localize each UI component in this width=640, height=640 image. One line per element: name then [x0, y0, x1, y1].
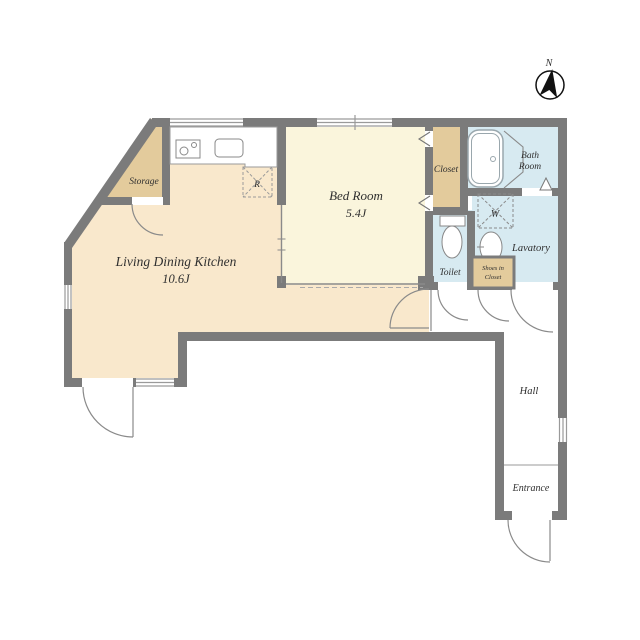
room-floor-hall-corridor: [429, 285, 563, 332]
label-ldk-size: 10.6J: [162, 272, 191, 286]
ldk-bottom-window: [136, 378, 174, 387]
wall-ldk-bottom: [178, 332, 504, 341]
hall-window: [558, 418, 567, 442]
wall-kitchen-left: [162, 118, 170, 205]
opening-toilet-door: [438, 282, 467, 290]
compass: N: [536, 58, 564, 99]
left-window: [64, 285, 72, 309]
bathtub: [468, 130, 503, 187]
stove: [176, 140, 200, 158]
label-shoes-closet-line2: Closet: [485, 274, 502, 281]
shoes-closet-box: [472, 257, 514, 288]
floor-plan-page: N Storage Living Dining Kitchen 10.6J Be…: [0, 0, 640, 640]
wall-left: [64, 242, 72, 385]
opening-terrace-door: [82, 378, 133, 387]
label-entrance: Entrance: [512, 483, 550, 494]
label-bedroom-size: 5.4J: [346, 206, 367, 220]
label-bathroom-line2: Room: [518, 162, 541, 172]
opening-entrance-door: [512, 511, 552, 520]
label-toilet: Toilet: [439, 268, 461, 278]
compass-north-label: N: [545, 58, 554, 69]
kitchen-window: [170, 118, 243, 127]
wall-hall-left: [495, 332, 504, 520]
opening-closet-door-lower: [425, 195, 433, 211]
label-refrigerator: R: [253, 180, 260, 190]
label-hall: Hall: [519, 386, 539, 397]
label-storage: Storage: [129, 177, 159, 187]
opening-lavatory-door: [512, 282, 553, 290]
label-lavatory: Lavatory: [511, 243, 550, 254]
label-shoes-closet-line1: Shoes in: [482, 265, 504, 272]
label-ldk-name: Living Dining Kitchen: [115, 254, 237, 269]
room-floor-ldk-strip: [281, 283, 431, 332]
floor-plan: N Storage Living Dining Kitchen 10.6J Be…: [0, 0, 640, 640]
wall-kitchen-bedroom: [277, 118, 286, 205]
opening-closet-door-upper: [425, 131, 433, 147]
wall-right: [558, 118, 567, 520]
opening-storage-door: [132, 197, 163, 205]
entrance-door: [508, 520, 550, 562]
kitchen-sink: [215, 139, 243, 157]
label-closet: Closet: [434, 165, 459, 175]
terrace-door: [83, 387, 133, 437]
label-bedroom-name: Bed Room: [329, 188, 383, 203]
label-bathroom-line1: Bath: [521, 151, 539, 161]
wall-closet-right: [460, 118, 468, 215]
